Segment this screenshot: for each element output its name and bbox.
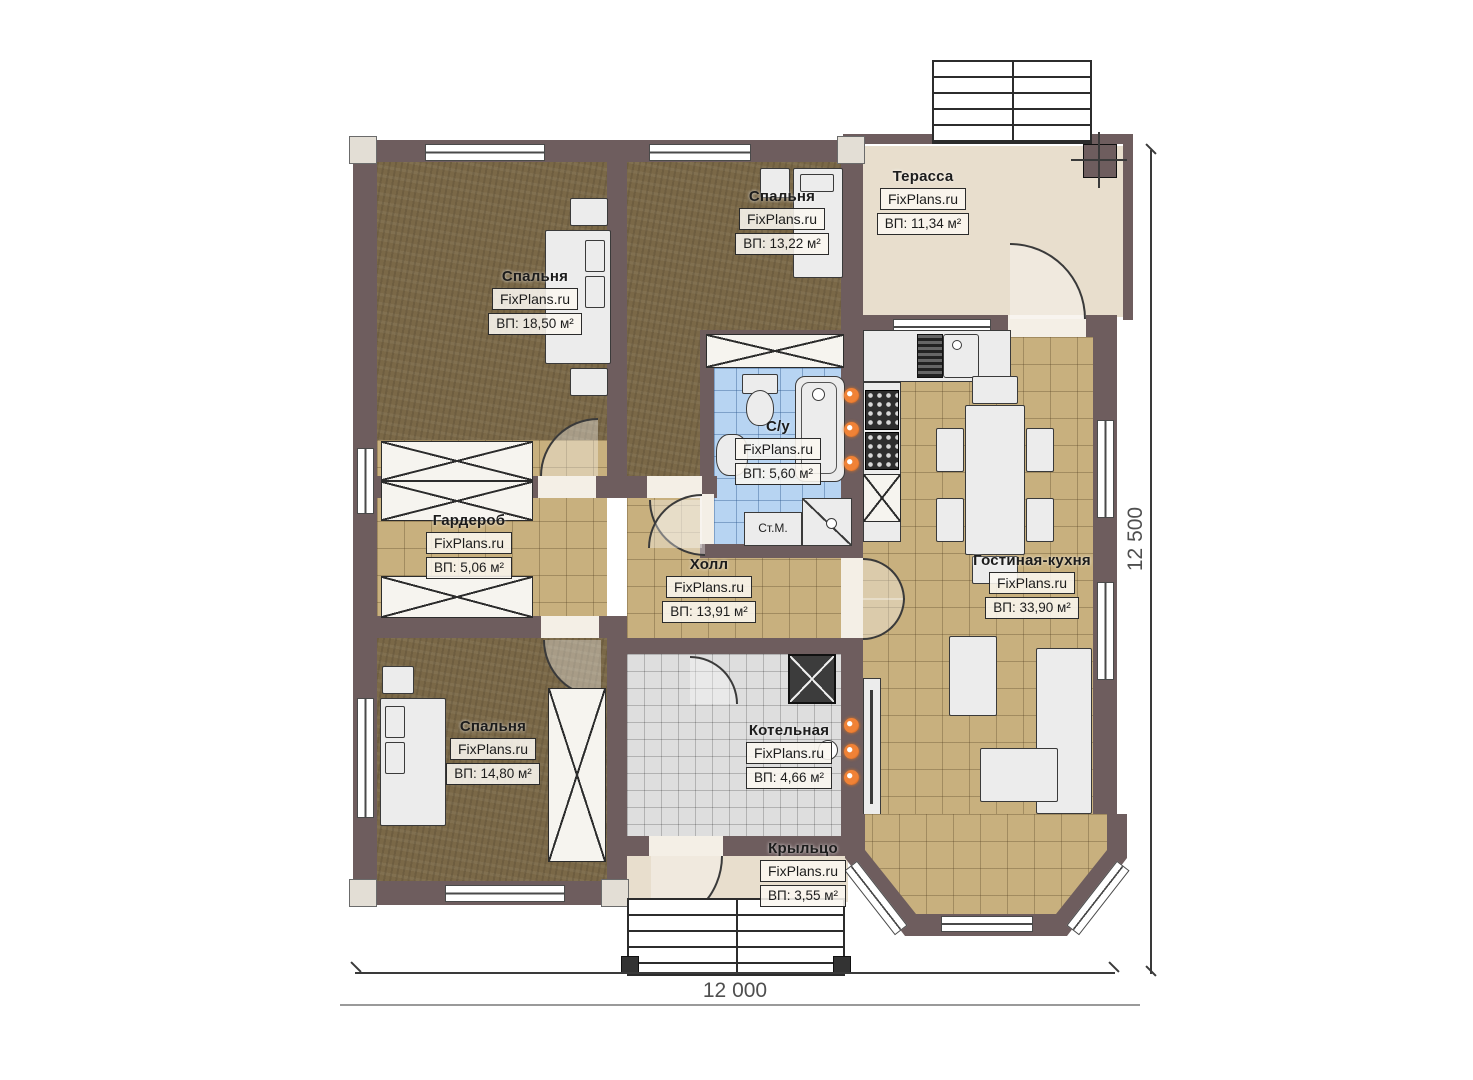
room-area: ВП: 14,80 м² [446,763,540,785]
nightstand [382,666,414,694]
armchair [949,636,997,716]
nightstand [570,368,608,396]
floor-plan: Ст.М. Спальня FixPlans.ru ВП: 18,50 м² С… [0,0,1473,1080]
coffee-table [980,748,1058,802]
divider-line [340,1004,1140,1006]
room-area: ВП: 5,60 м² [735,463,821,485]
chair [1026,428,1054,472]
room-label-bedroom-3: Спальня FixPlans.ru ВП: 14,80 м² [418,718,568,785]
dimension-label-width: 12 000 [665,979,805,1003]
room-name: Спальня [418,718,568,735]
door-opening [538,476,596,498]
room-name: Котельная [728,722,850,739]
terrace-wall [1123,134,1133,320]
chair [972,376,1018,404]
room-label-boiler-room: Котельная FixPlans.ru ВП: 4,66 м² [728,722,850,789]
chair [936,428,964,472]
wardrobe-cabinet [381,441,533,481]
room-name: Гостиная-кухня [952,552,1112,569]
window [649,144,751,161]
bay-center-window [941,916,1033,932]
room-name: Холл [645,556,773,573]
brand-watermark: FixPlans.ru [666,576,752,598]
dimension-tick [350,961,361,972]
window [357,448,374,514]
brand-watermark: FixPlans.ru [426,532,512,554]
room-label-bedroom-2: Спальня FixPlans.ru ВП: 13,22 м² [712,188,852,255]
room-name: Спальня [712,188,852,205]
chair [1026,498,1054,542]
brand-watermark: FixPlans.ru [760,860,846,882]
bay-window [845,814,1127,936]
door-opening [700,494,714,544]
room-name: Терасса [858,168,988,185]
radiator-icon [844,456,859,471]
pillow [385,742,405,774]
entrance-door-opening [649,836,723,856]
corner-post [601,879,629,907]
kitchen-appliance [917,334,943,378]
closet [706,334,844,368]
room-area: ВП: 13,22 м² [735,233,829,255]
brand-watermark: FixPlans.ru [880,188,966,210]
window [425,144,545,161]
room-label-bathroom: С/у FixPlans.ru ВП: 5,60 м² [722,418,834,485]
terrace-stairs [932,60,1092,144]
radiator-icon [844,388,859,403]
corner-post [349,136,377,164]
faucet [952,340,962,350]
brand-watermark: FixPlans.ru [492,288,578,310]
washing-machine-label: Ст.М. [758,521,788,535]
dimension-label-height: 12 500 [1124,469,1148,609]
stove [865,432,899,470]
shower-drain [826,518,837,529]
room-label-hall: Холл FixPlans.ru ВП: 13,91 м² [645,556,773,623]
ventilation-shaft [788,654,836,704]
dimension-tick [1108,961,1119,972]
brand-watermark: FixPlans.ru [735,438,821,460]
chair [936,498,964,542]
room-label-porch: Крыльцо FixPlans.ru ВП: 3,55 м² [742,840,864,907]
dining-table [965,405,1025,555]
kitchen-sink [943,334,979,378]
room-label-wardrobe: Гардероб FixPlans.ru ВП: 5,06 м² [408,512,530,579]
porch-stairs [627,898,845,976]
room-area: ВП: 4,66 м² [746,767,832,789]
room-area: ВП: 3,55 м² [760,885,846,907]
room-area: ВП: 18,50 м² [488,313,582,335]
wall [627,638,843,654]
dishwasher [863,474,901,522]
tv-icon [870,690,873,804]
room-area: ВП: 11,34 м² [877,213,970,235]
room-name: Гардероб [408,512,530,529]
room-area: ВП: 5,06 м² [426,557,512,579]
room-area: ВП: 13,91 м² [662,601,756,623]
pillow [385,706,405,738]
room-label-terrace: Терасса FixPlans.ru ВП: 11,34 м² [858,168,988,235]
column-axis-line [1098,132,1100,188]
door-opening [541,616,599,638]
door-opening [841,558,863,638]
wardrobe-cabinet [381,576,533,618]
corner-post [837,136,865,164]
dimension-line-vertical [1150,150,1152,974]
brand-watermark: FixPlans.ru [739,208,825,230]
terrace-column [1083,144,1117,178]
brand-watermark: FixPlans.ru [450,738,536,760]
room-area: ВП: 33,90 м² [985,597,1079,619]
window [357,698,374,818]
room-label-bedroom-1: Спальня FixPlans.ru ВП: 18,50 м² [455,268,615,335]
room-label-living-kitchen: Гостиная-кухня FixPlans.ru ВП: 33,90 м² [952,552,1112,619]
wall [349,140,847,162]
bathtub-drain [812,388,825,401]
washing-machine: Ст.М. [744,512,802,546]
room-name: Спальня [455,268,615,285]
window [445,885,565,902]
brand-watermark: FixPlans.ru [989,572,1075,594]
dimension-line-horizontal [355,972,1115,974]
window [1097,420,1114,518]
room-name: С/у [722,418,834,435]
stove [865,390,899,430]
brand-watermark: FixPlans.ru [746,742,832,764]
room-name: Крыльцо [742,840,864,857]
corner-post [349,879,377,907]
nightstand [570,198,608,226]
radiator-icon [844,422,859,437]
